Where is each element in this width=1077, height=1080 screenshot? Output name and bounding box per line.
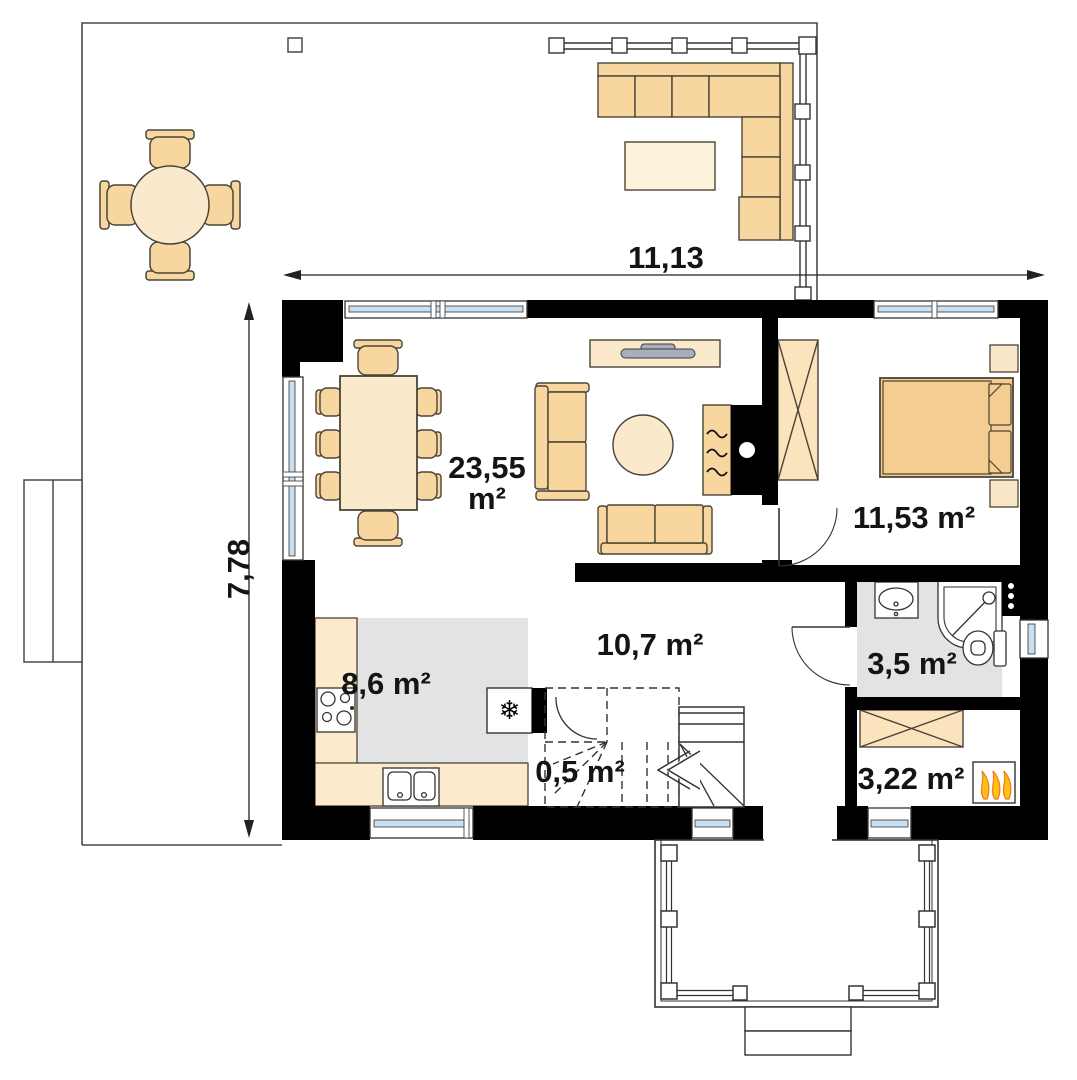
vent-dots [1008, 583, 1014, 609]
chair [415, 388, 437, 416]
window-bathroom-right [1020, 620, 1048, 658]
window-hall-bottom [692, 808, 733, 838]
bed [880, 378, 1013, 477]
outdoor-table-set [100, 130, 240, 280]
room-label-kitchen: 8,6 m² [306, 667, 466, 701]
dining-table [340, 376, 417, 510]
window-utility-bottom [868, 808, 911, 838]
window-living-left [283, 377, 303, 560]
room-label-living-value: 23,55 [427, 452, 547, 483]
outdoor-chair [150, 137, 190, 168]
porch [655, 840, 938, 1055]
room-label-hall: 10,7 m² [570, 628, 730, 662]
round-coffee-table [613, 415, 673, 475]
porch-steps [745, 1007, 851, 1055]
terrace-coffee-table [625, 142, 715, 190]
room-label-closet: 0,5 m² [500, 755, 660, 789]
window-bedroom-top [874, 301, 998, 318]
fridge-snowflake-icon: ❄ [489, 697, 530, 723]
sofa-horizontal [598, 505, 712, 554]
window-living-top [345, 301, 527, 318]
chair [358, 511, 398, 540]
closet-door-arc [556, 697, 597, 739]
stairs-dashed-winder [545, 688, 679, 807]
utility-wardrobe [860, 710, 963, 747]
bathroom-sink [875, 582, 918, 618]
door-bedroom [779, 508, 837, 566]
window-kitchen-bottom [370, 808, 473, 838]
floor-plan: 11,13 7,78 23,55 m² 11,53 m² 10,7 m² 8,6… [0, 0, 1077, 1080]
bedroom-wardrobe [778, 340, 818, 480]
chair [320, 472, 342, 500]
chair [320, 430, 342, 458]
dining-table-set [316, 340, 441, 546]
site-marker [288, 38, 302, 52]
room-label-bedroom: 11,53 m² [834, 501, 994, 535]
nightstand [990, 345, 1018, 372]
room-label-living: 23,55 m² [427, 452, 547, 514]
dimension-width-label: 11,13 [586, 241, 746, 275]
chimney-flue [739, 442, 755, 458]
garden-bench [24, 480, 82, 662]
outdoor-chair [150, 242, 190, 273]
room-label-utility: 3,22 m² [831, 762, 991, 796]
chair [358, 346, 398, 375]
nightstand [990, 480, 1018, 507]
kitchen-sink [383, 768, 439, 806]
room-label-living-unit: m² [427, 483, 547, 514]
door-opening [764, 839, 832, 842]
tv-cabinet [590, 340, 720, 367]
outdoor-round-table [131, 166, 209, 244]
dimension-height-label: 7,78 [222, 489, 256, 649]
tv [621, 349, 695, 358]
room-label-bathroom: 3,5 m² [832, 647, 992, 681]
fireplace [703, 405, 731, 495]
chair [320, 388, 342, 416]
